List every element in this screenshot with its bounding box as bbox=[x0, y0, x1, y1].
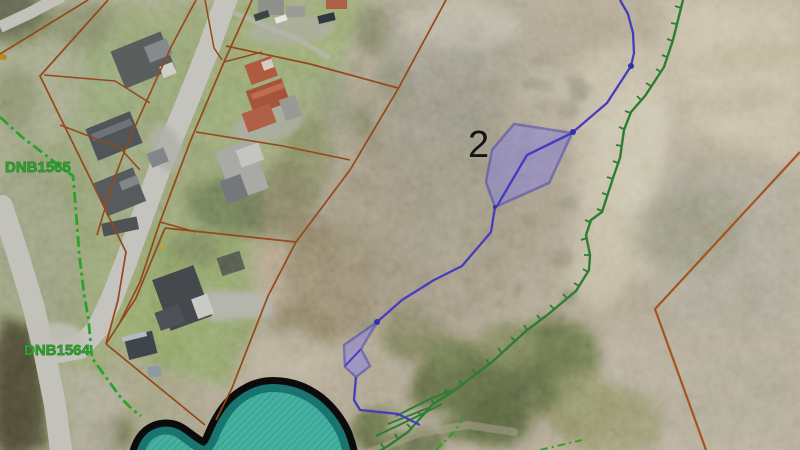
svg-text:DNB1565: DNB1565 bbox=[5, 159, 71, 176]
svg-text:2: 2 bbox=[468, 124, 489, 166]
svg-text:DNB1564: DNB1564 bbox=[24, 342, 91, 359]
